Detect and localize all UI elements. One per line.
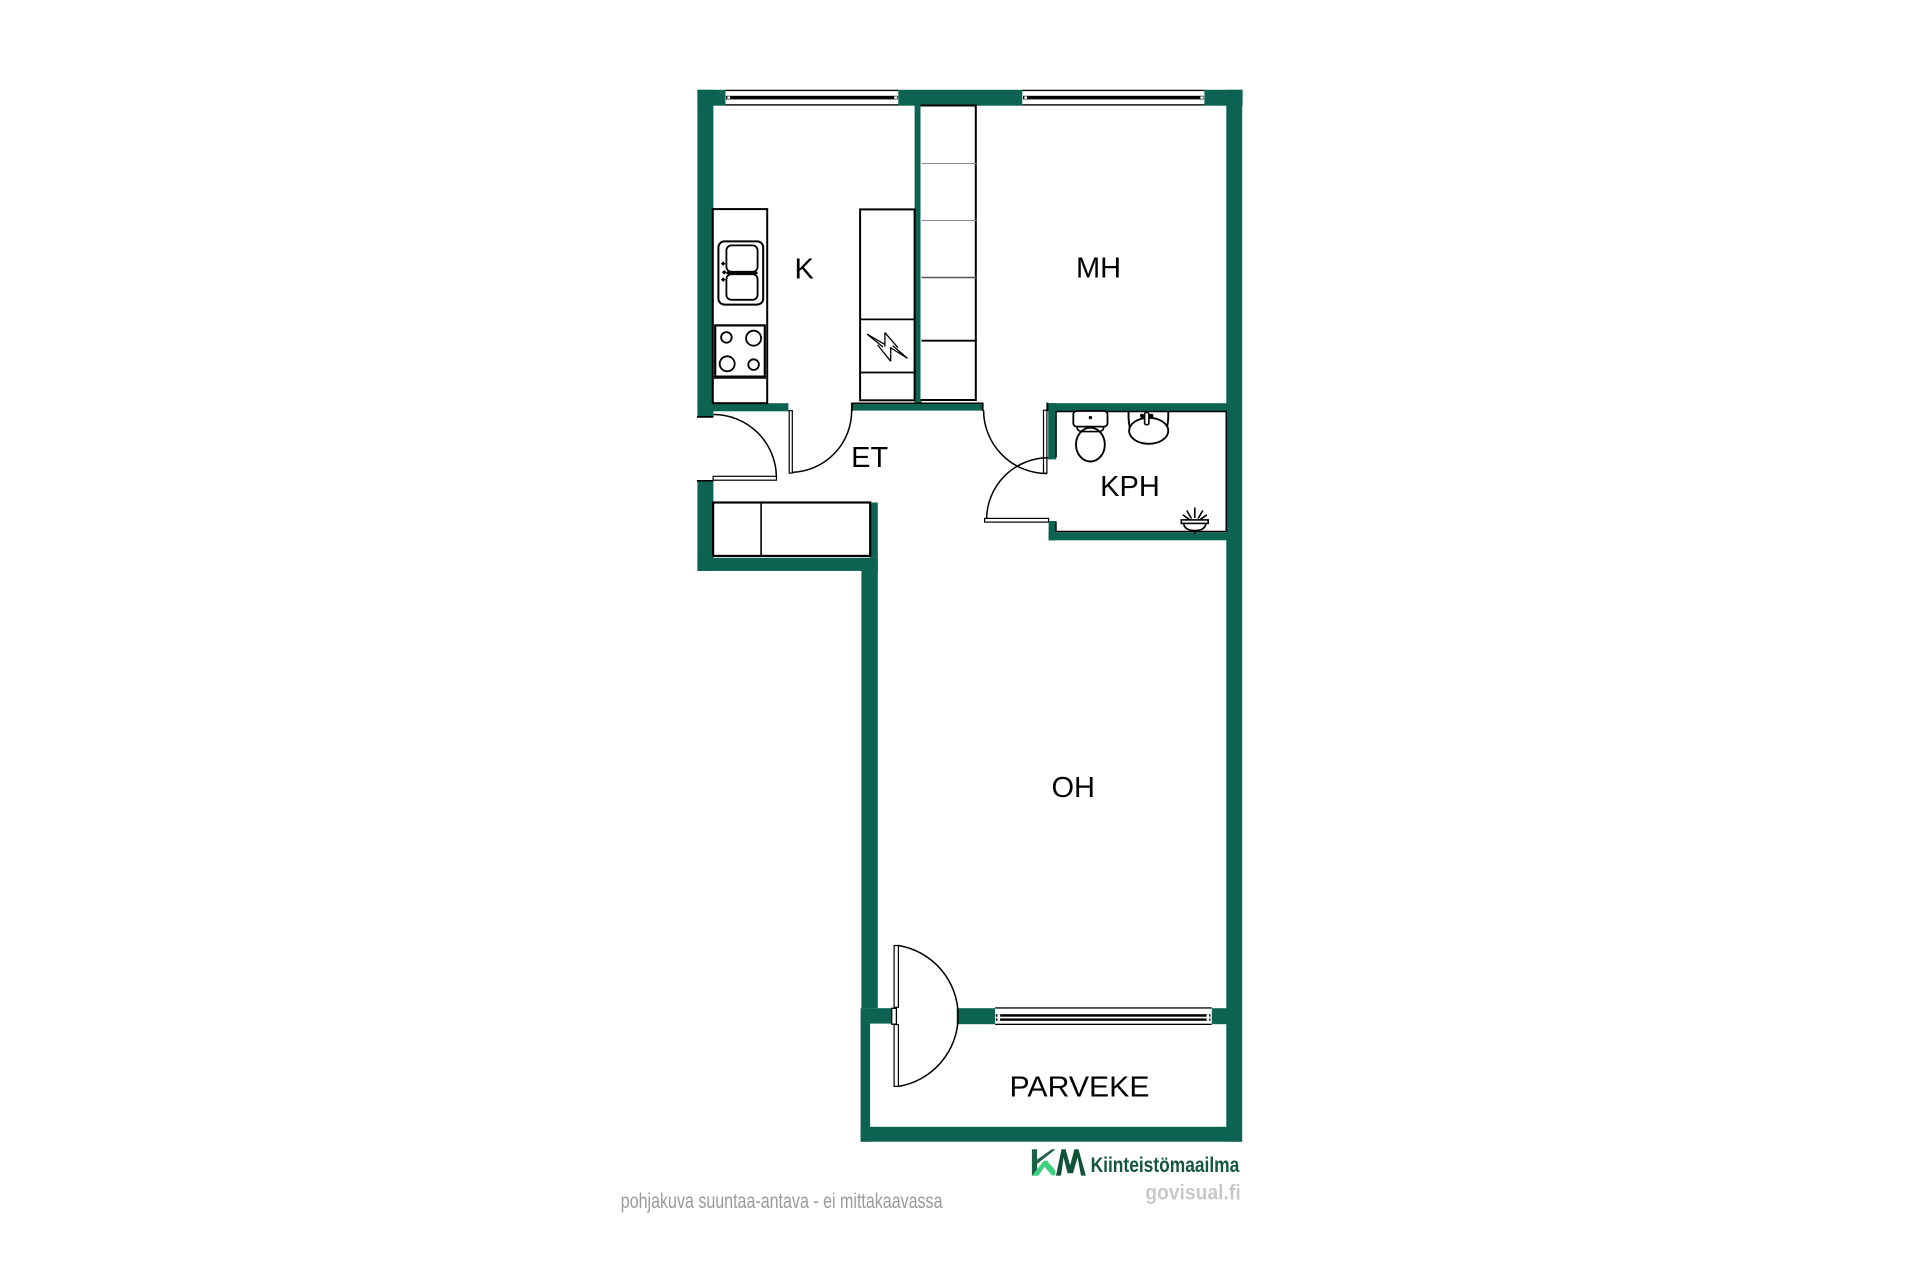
- svg-text:Kiinteistömaailma: Kiinteistömaailma: [1091, 1154, 1240, 1177]
- svg-text:MH: MH: [1076, 252, 1121, 284]
- svg-text:pohjakuva suuntaa-antava - ei: pohjakuva suuntaa-antava - ei mittakaava…: [621, 1190, 943, 1213]
- svg-text:ET: ET: [851, 442, 888, 474]
- svg-text:OH: OH: [1051, 772, 1095, 804]
- svg-text:K: K: [795, 253, 815, 285]
- svg-text:KPH: KPH: [1100, 471, 1160, 503]
- svg-text:PARVEKE: PARVEKE: [1010, 1071, 1150, 1103]
- svg-text:govisual.fi: govisual.fi: [1145, 1181, 1241, 1205]
